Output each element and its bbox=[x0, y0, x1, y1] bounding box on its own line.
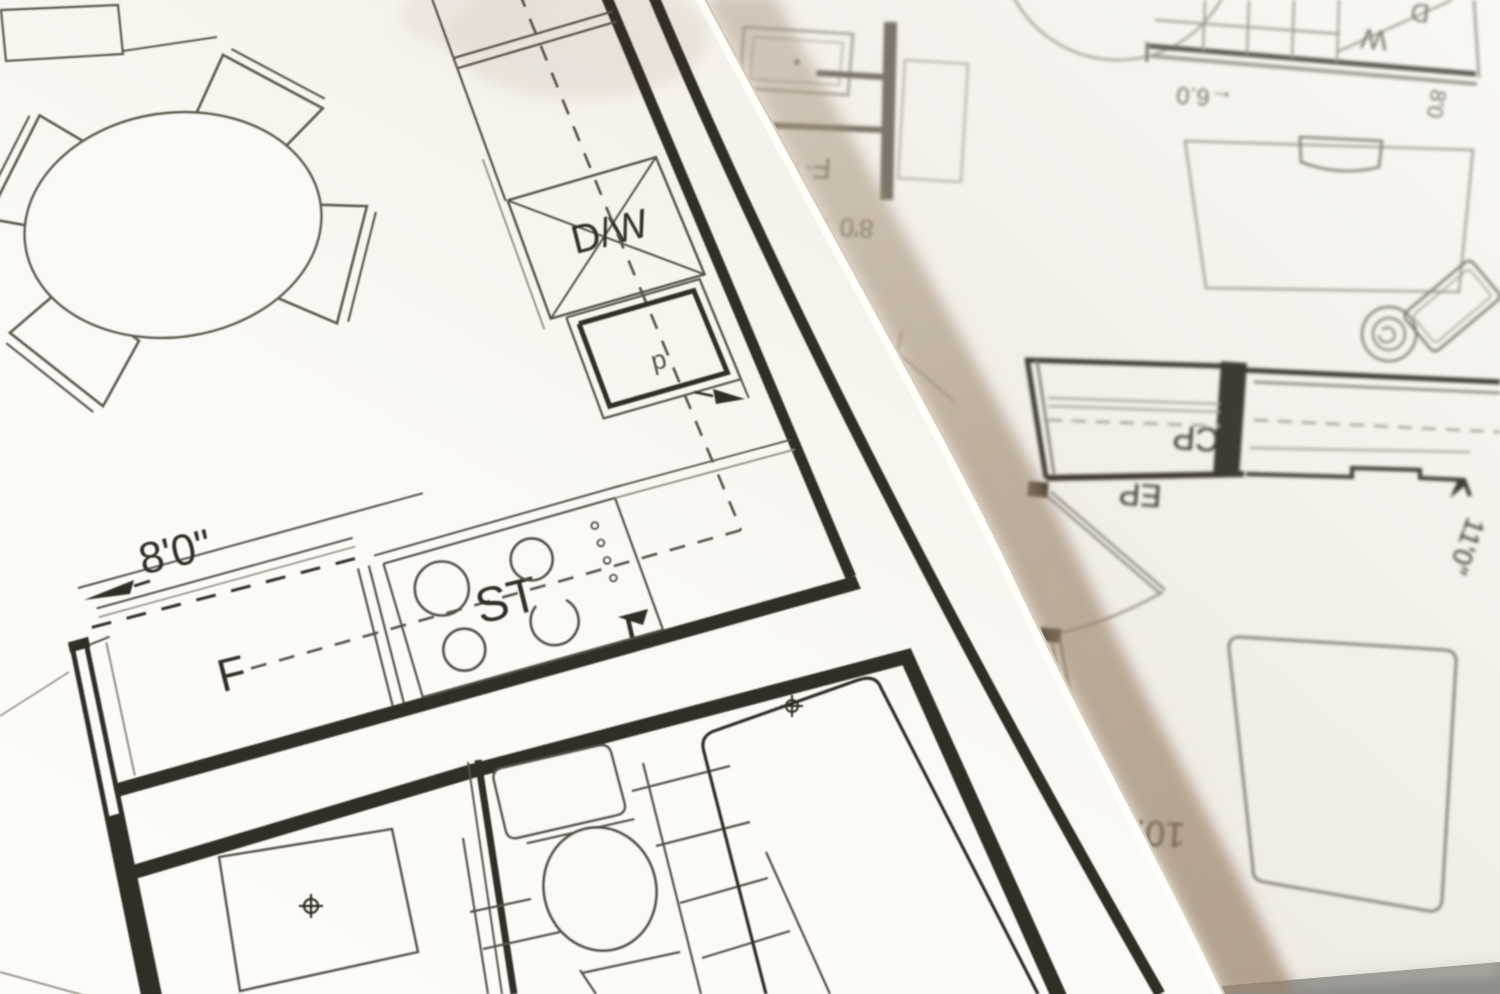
svg-text:EP: EP bbox=[1118, 476, 1163, 515]
svg-text:←6.0: ←6.0 bbox=[1175, 81, 1234, 112]
svg-text:CP: CP bbox=[1171, 417, 1221, 458]
svg-text:8'0: 8'0 bbox=[1422, 88, 1452, 121]
svg-text:D: D bbox=[1409, 0, 1431, 29]
svg-text:W: W bbox=[1359, 23, 1389, 57]
